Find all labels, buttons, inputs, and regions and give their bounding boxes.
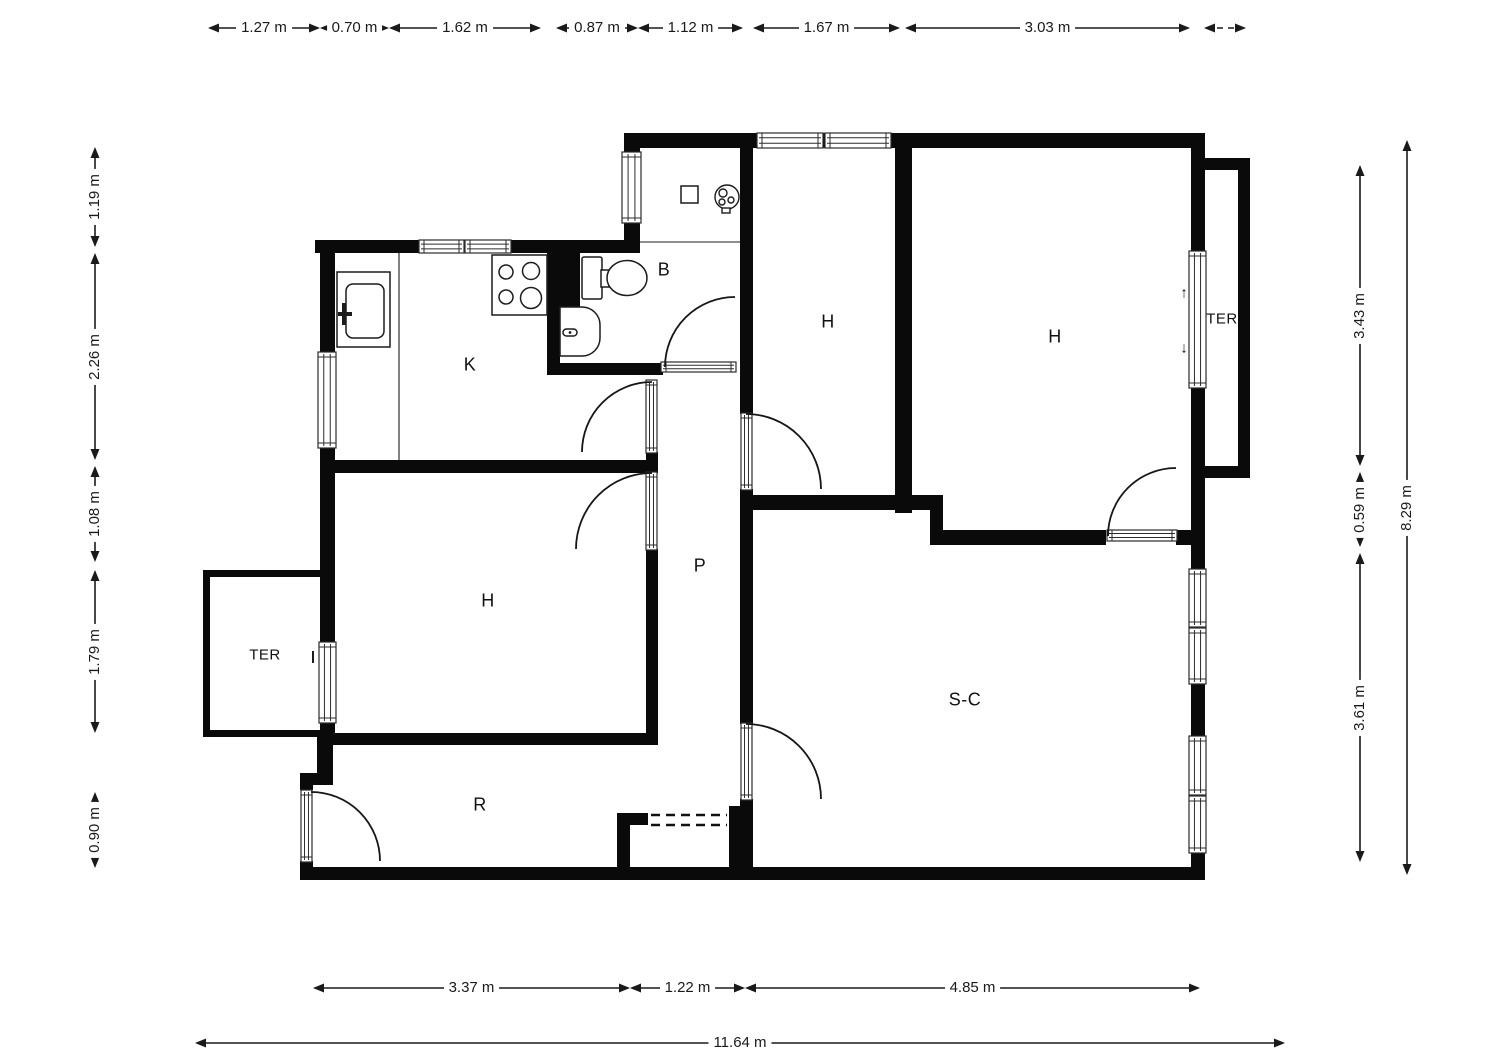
window-icon: [622, 152, 641, 223]
room-label-bedroom_right: H: [1048, 327, 1062, 348]
window-icon: [1189, 569, 1206, 627]
dimension-label-t3: 1.62 m: [437, 20, 493, 37]
door-swing-arc: [311, 792, 380, 861]
wall-segment: [1238, 158, 1250, 478]
window-icon: [1189, 251, 1206, 388]
room-label-terrace_left: TER: [249, 647, 281, 664]
dimension-label-t2: 0.70 m: [327, 20, 383, 37]
dimension-label-l4: 1.79 m: [87, 624, 104, 680]
wall-segment: [646, 549, 658, 733]
walls: [203, 133, 1250, 880]
wall-segment: [203, 730, 323, 737]
wall-segment: [300, 861, 313, 880]
dimension-label-r2: 0.59 m: [1352, 482, 1369, 538]
dimension-label-b3: 4.85 m: [945, 980, 1001, 997]
dimension-label-r1: 3.43 m: [1352, 288, 1369, 344]
dimension-label-b2: 1.22 m: [660, 980, 716, 997]
door-swing-arc: [576, 473, 652, 549]
washbasin-icon: [560, 307, 600, 356]
toilet-icon: [582, 257, 647, 299]
window-icon: [318, 352, 336, 448]
floor-plan-page: 1.27 m0.70 m1.62 m0.87 m1.12 m1.67 m3.03…: [0, 0, 1500, 1061]
wall-segment: [1205, 466, 1250, 478]
door-swing-arc: [746, 724, 821, 799]
wall-segment: [895, 133, 912, 513]
door-swing-arc: [582, 382, 652, 452]
door-leaf-icon: [646, 380, 657, 453]
dimension-label-b4: 11.64 m: [708, 1035, 771, 1052]
dimension-label-b1: 3.37 m: [444, 980, 500, 997]
room-label-reception: R: [473, 795, 487, 816]
window-icon: [319, 642, 336, 723]
window-icon: [1189, 736, 1206, 795]
dimension-label-t1: 1.27 m: [236, 20, 292, 37]
wall-segment: [740, 489, 753, 724]
dimension-label-t5: 1.12 m: [663, 20, 719, 37]
wall-segment: [740, 495, 943, 510]
window-icon: [465, 240, 511, 253]
dimension-label-l2: 2.26 m: [87, 329, 104, 385]
wall-segment: [930, 495, 943, 545]
door-swing-arc: [746, 414, 821, 489]
shower-drain-icon: [681, 186, 698, 203]
wall-segment: [547, 363, 663, 375]
door-leaf-icon: [661, 362, 736, 372]
wall-segment: [740, 799, 753, 873]
room-label-bedroom_middle: H: [821, 312, 835, 333]
dimension-label-l1: 1.19 m: [87, 169, 104, 225]
wall-segment: [322, 460, 658, 473]
door-swing-arc: [665, 297, 735, 367]
door-swing-arc: [1108, 468, 1176, 536]
window-icon: [825, 133, 891, 148]
dimension-line-stub: [1204, 24, 1246, 33]
door-leaf-icon: [741, 413, 752, 490]
floor-plan-drawing: [0, 0, 1500, 1061]
door-leaf-icon: [301, 790, 312, 862]
room-label-hallway: P: [694, 556, 707, 577]
door-leaf-icon: [1107, 530, 1177, 541]
wall-segment: [317, 733, 658, 745]
dimension-label-l5: 0.90 m: [87, 802, 104, 858]
dimension-label-r4: 8.29 m: [1399, 480, 1416, 536]
entrance-dashed-opening: [651, 815, 727, 825]
wall-segment: [740, 133, 753, 414]
window-icon: [1189, 796, 1206, 853]
kitchen-sink-icon: [337, 272, 390, 347]
dimension-label-t4: 0.87 m: [569, 20, 625, 37]
room-label-bathroom: B: [658, 260, 671, 281]
dimension-label-t7: 3.03 m: [1020, 20, 1076, 37]
window-icon: [419, 240, 464, 253]
dimension-label-r3: 3.61 m: [1352, 680, 1369, 736]
wall-segment: [547, 245, 580, 312]
room-label-terrace_right: TER: [1206, 311, 1238, 328]
wall-segment: [729, 806, 741, 873]
room-label-kitchen: K: [464, 355, 477, 376]
washing-machine-icon: [715, 185, 739, 213]
window-icon: [1189, 628, 1206, 684]
dimension-label-t6: 1.67 m: [799, 20, 855, 37]
stove-icon: [492, 255, 547, 315]
wall-segment: [617, 813, 648, 825]
down-arrow-icon: ↓: [1180, 340, 1188, 357]
wall-segment: [203, 570, 210, 737]
wall-segment: [624, 133, 1205, 148]
up-arrow-icon: ↑: [1180, 285, 1188, 302]
room-label-living_dining: S-C: [949, 690, 982, 711]
dimension-label-l3: 1.08 m: [87, 486, 104, 542]
wall-segment: [646, 452, 658, 473]
wall-segment: [943, 530, 1106, 545]
wall-segment: [1176, 530, 1205, 545]
window-icon: [757, 133, 823, 148]
room-label-bedroom_left: H: [481, 591, 495, 612]
door-leaf-icon: [646, 472, 657, 550]
door-leaf-icon: [741, 723, 752, 800]
fixtures: [313, 185, 740, 663]
wall-segment: [203, 570, 323, 577]
